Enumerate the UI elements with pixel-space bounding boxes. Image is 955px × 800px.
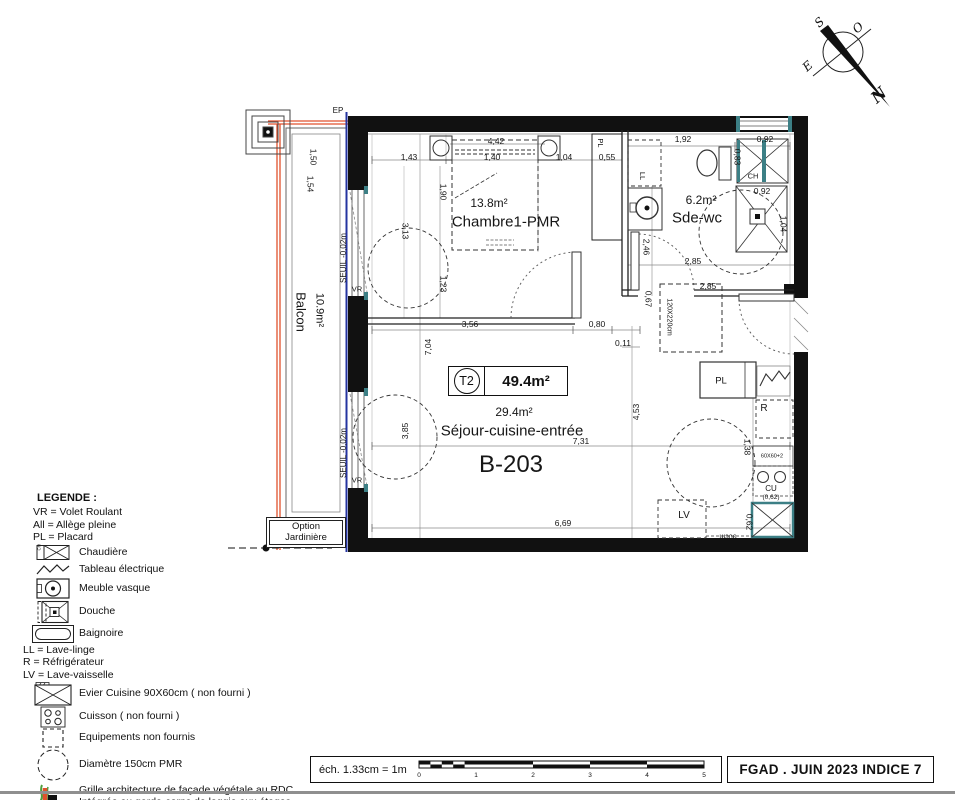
meuble-vasque-icon — [27, 578, 79, 599]
dimension-label: 3,13 — [401, 223, 410, 240]
legend-item-label: Cuisson ( non fourni ) — [79, 711, 179, 723]
legend-item-label: Baignoire — [79, 628, 123, 640]
chambre-name: Chambre1-PMR — [452, 214, 560, 231]
chaudiere-label: CH — [748, 172, 759, 180]
dimension-label: 1,23 — [439, 276, 448, 293]
scale-bar: éch. 1.33cm = 1m 0 1 2 3 4 5 — [310, 756, 722, 783]
volet-roulant-label: VR — [352, 285, 362, 293]
sejour-name: Séjour-cuisine-entrée — [441, 423, 584, 440]
dimension-label: 120X220cm — [666, 298, 673, 335]
dimension-label: 0,11 — [615, 339, 631, 348]
title-block: FGAD . JUIN 2023 INDICE 7 — [727, 756, 934, 783]
scale-tick: 1 — [474, 772, 478, 779]
legend-title: LEGENDE : — [37, 492, 345, 504]
unit-title-box: T2 49.4m² — [448, 366, 568, 396]
plan-note: 60X60+2 — [761, 454, 783, 460]
dimension-label: 0,83 — [733, 149, 742, 166]
dimension-label: 1,40 — [484, 153, 501, 162]
scale-label: éch. 1.33cm = 1m — [311, 764, 407, 776]
legend-abbrev: All = Allège pleine — [33, 519, 345, 532]
legend-item-label: Chaudière — [79, 547, 127, 559]
cuisson-label: CU — [765, 485, 777, 493]
dimension-label: 0,67 — [644, 291, 653, 308]
dimension-label: 4,42 — [488, 137, 505, 146]
dimension-label: 0,92 — [754, 187, 771, 196]
scale-tick: 2 — [531, 772, 535, 779]
dimension-label: 0,62 — [745, 514, 754, 531]
dimension-label: 3,56 — [462, 320, 479, 329]
dimension-label: 3,85 — [401, 423, 410, 440]
refrigerateur-label: R — [760, 404, 767, 414]
plan-note: (0,62) — [763, 495, 780, 502]
ep-label: EP — [333, 107, 344, 115]
svg-text:CH: CH — [37, 544, 42, 551]
douche-icon — [27, 600, 79, 624]
dimension-label: 7,04 — [424, 339, 433, 356]
legend-abbrev: VR = Volet Roulant — [33, 506, 345, 519]
dimension-label: 4,53 — [632, 404, 641, 421]
dimension-label: 0,55 — [599, 153, 616, 162]
legend: LEGENDE : VR = Volet Roulant All = Allèg… — [15, 492, 345, 800]
lave-linge-label: LL — [638, 172, 646, 180]
dimension-label: 1,04 — [556, 153, 573, 162]
unit-area: 49.4m² — [485, 367, 567, 395]
legend-grille-line2: Intégrée au garde-corps de loggia aux ét… — [79, 797, 293, 800]
dimension-label: 1,50 — [309, 149, 318, 166]
legend-item-label: Evier Cuisine 90X60cm ( non fourni ) — [79, 688, 251, 700]
scale-tick: 5 — [702, 772, 706, 779]
scale-ruler: 0 1 2 3 4 5 — [413, 758, 715, 782]
scale-tick: 0 — [417, 772, 421, 779]
dimension-label: 2,46 — [642, 239, 651, 256]
evier-icon — [27, 682, 79, 706]
unit-number: B-203 — [479, 451, 543, 479]
placard-kitchen-label: PL — [715, 376, 727, 386]
tableau-electrique-icon — [27, 563, 79, 577]
sheet-bottom-rule — [0, 791, 955, 794]
legend-abbrev: PL = Placard — [33, 531, 345, 544]
dimension-label: 6,69 — [555, 519, 572, 528]
floor-plan-sheet: S O E N 1,431,401,040,554,421,920,920,92… — [0, 0, 955, 800]
sde-name: Sde-wc — [672, 210, 722, 227]
sejour-area: 29.4m² — [495, 405, 532, 419]
legend-abbrev: R = Réfrigérateur — [23, 656, 345, 669]
baignoire-icon — [27, 625, 79, 643]
seuil-label: SEUIL -0,02m — [340, 428, 348, 478]
pmr-circle-icon — [27, 748, 79, 782]
balcon-area: 10.9m² — [314, 293, 325, 327]
lave-vaisselle-label: LV — [678, 511, 690, 521]
legend-item-label: Meuble vasque — [79, 583, 150, 595]
dimension-label: 0,92 — [757, 135, 774, 144]
chaudiere-icon: CH — [27, 544, 79, 561]
chambre-area: 13.8m² — [470, 196, 507, 210]
volet-roulant-label: VR — [352, 476, 362, 484]
sde-area: 6.2m² — [686, 193, 717, 207]
unit-type: T2 — [454, 368, 480, 394]
scale-tick: 4 — [645, 772, 649, 779]
cuisson-icon — [27, 706, 79, 728]
plan-note: 90cm — [719, 533, 736, 540]
dimension-label: 2,85 — [700, 282, 717, 291]
balcon-name: Balcon — [295, 292, 308, 332]
dimension-label: 0,80 — [589, 320, 606, 329]
legend-abbrev: LL = Lave-linge — [23, 644, 345, 657]
placard-chambre-label: PL — [596, 138, 604, 147]
dimension-label: 1,43 — [401, 153, 418, 162]
seuil-label: SEUIL -0,02m — [340, 233, 348, 283]
equipements-icon — [27, 728, 79, 748]
legend-item-label: Tableau électrique — [79, 564, 164, 576]
dimension-label: 1,38 — [743, 439, 752, 456]
title-block-text: FGAD . JUIN 2023 INDICE 7 — [739, 762, 921, 777]
legend-item-label: Douche — [79, 606, 115, 618]
dimension-label: 2,85 — [685, 257, 702, 266]
dimension-label: 1,90 — [439, 184, 448, 201]
legend-abbrev: LV = Lave-vaisselle — [23, 669, 345, 682]
legend-item-label: Equipements non fournis — [79, 732, 195, 744]
dimension-label: 1,54 — [306, 176, 315, 193]
dimension-label: 1,92 — [675, 135, 692, 144]
legend-item-label: Diamètre 150cm PMR — [79, 759, 182, 771]
dimension-label: 1,04 — [779, 216, 788, 233]
scale-tick: 3 — [588, 772, 592, 779]
